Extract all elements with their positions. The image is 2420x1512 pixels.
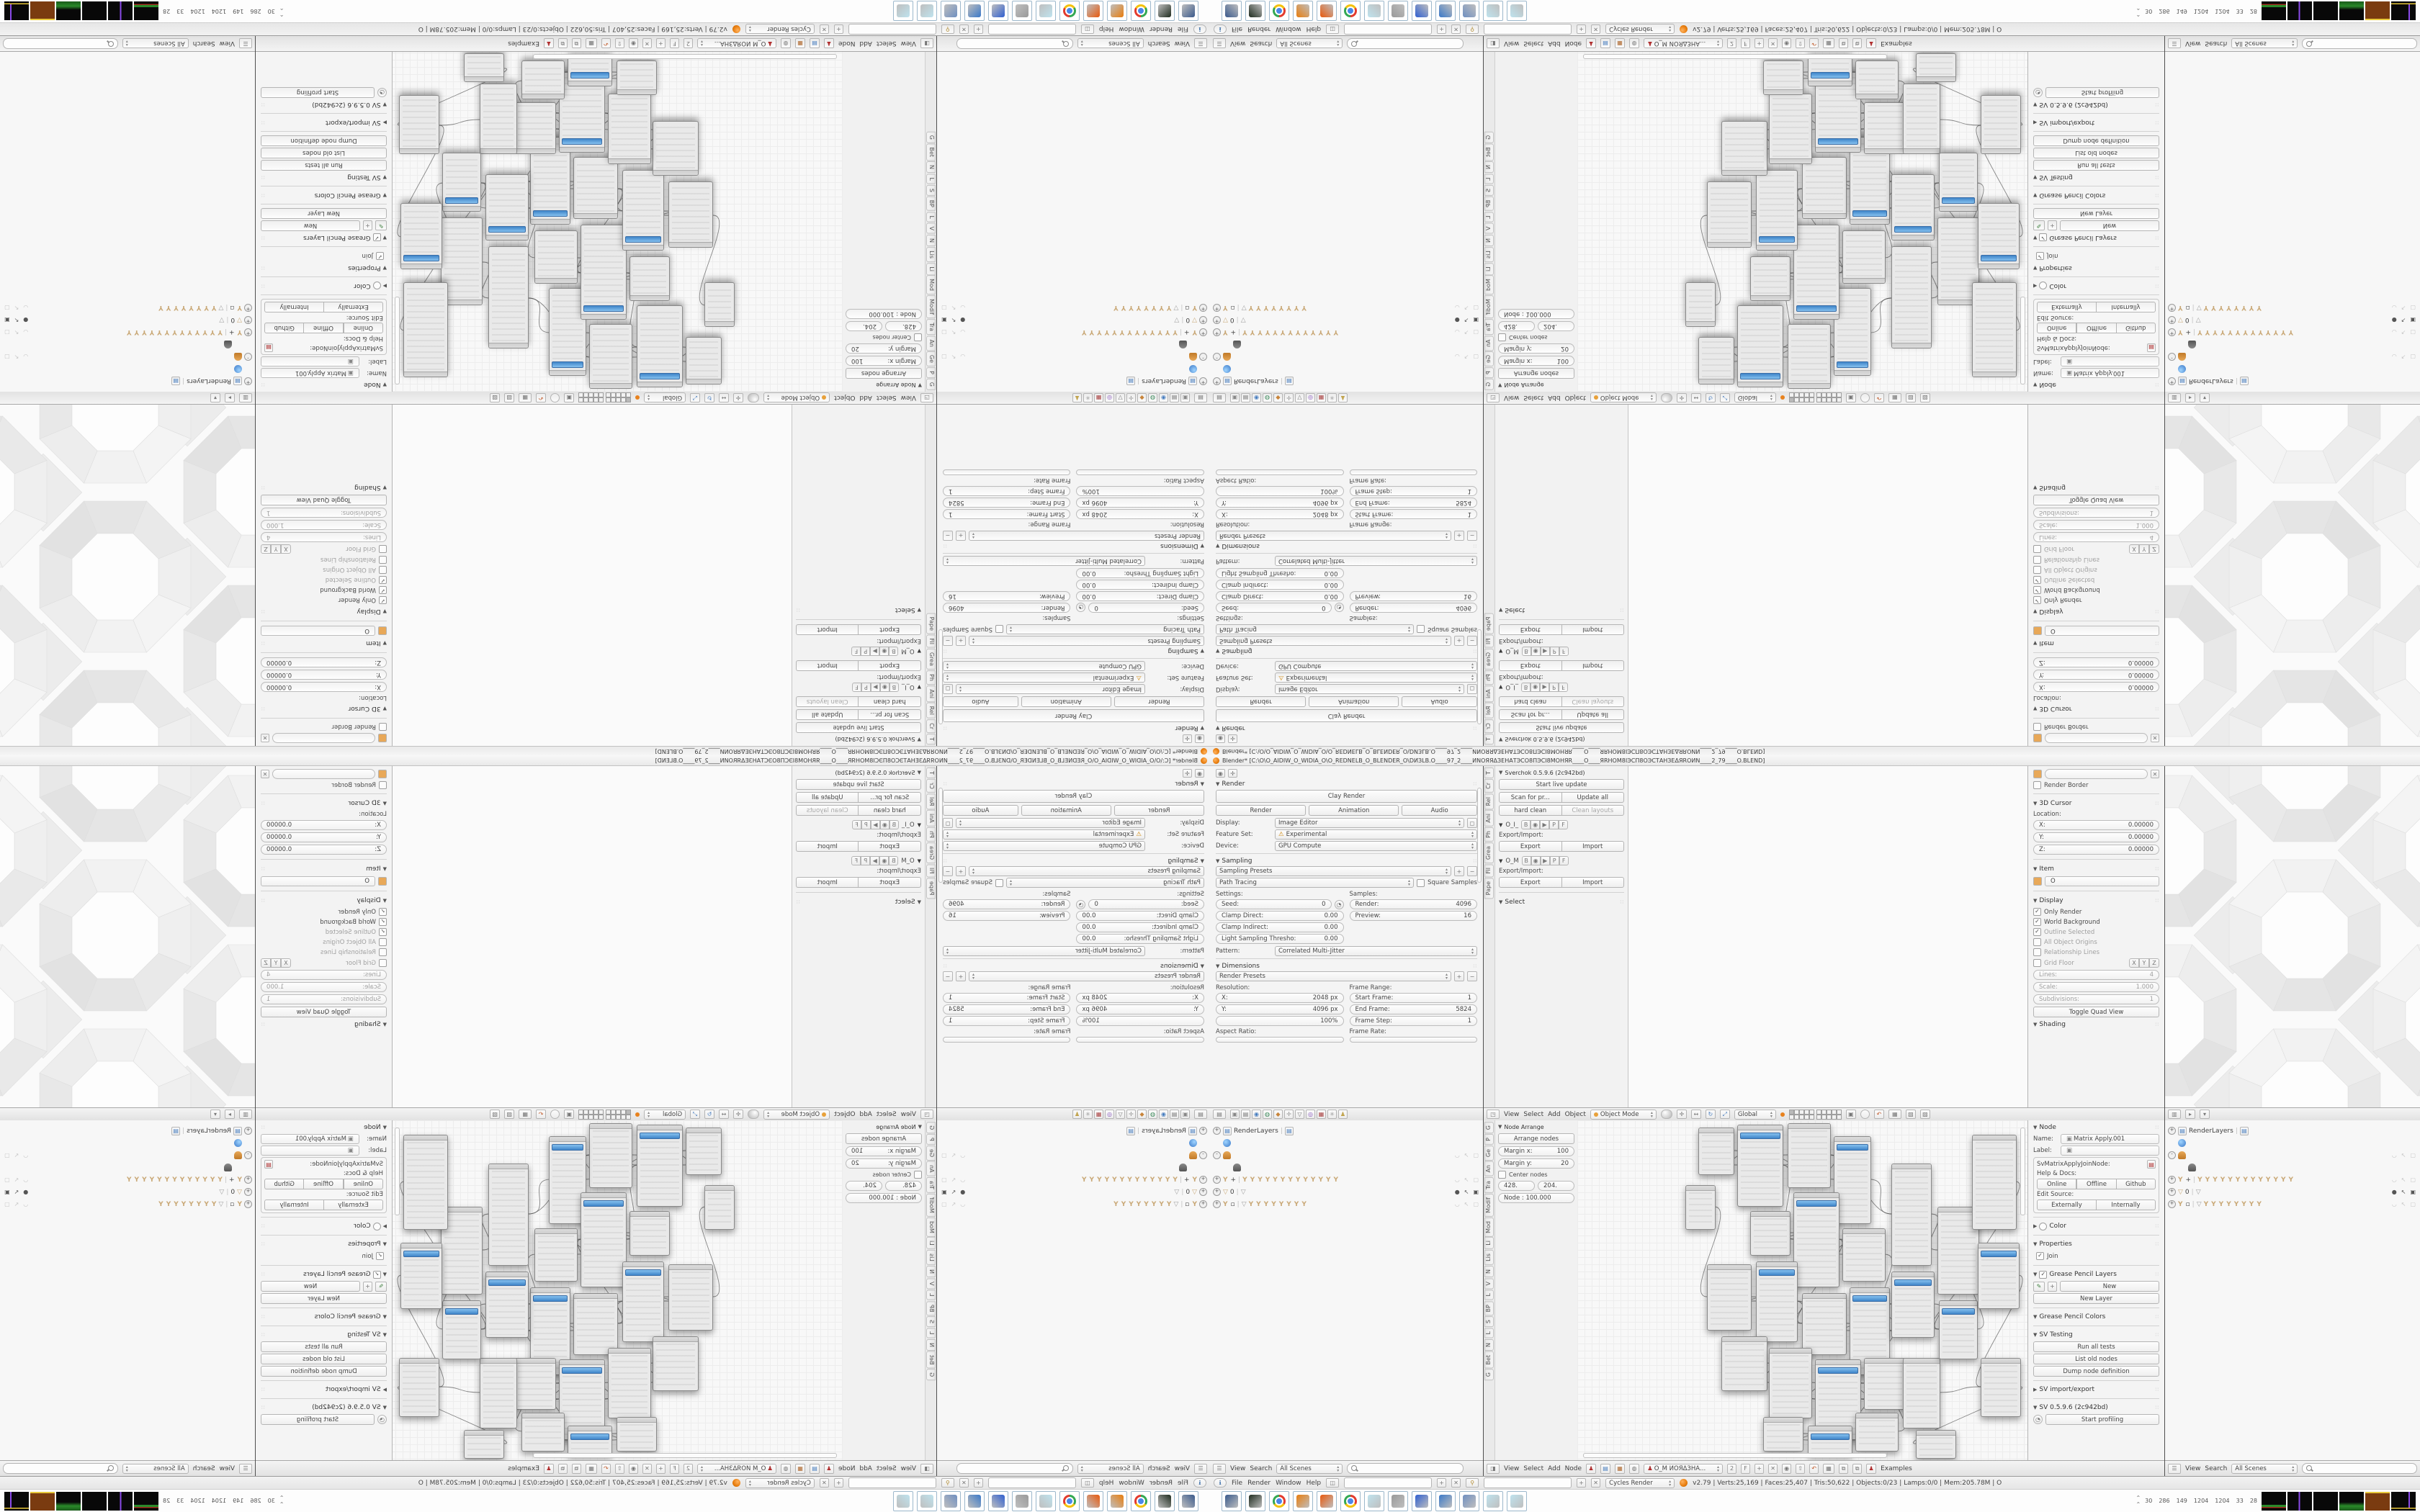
render-button[interactable]: Render: [1216, 696, 1306, 707]
cursor-y-field[interactable]: Y:0.00000: [261, 670, 387, 680]
expand-icon[interactable]: +: [1199, 1127, 1207, 1135]
props-tab-icon-2[interactable]: ◉: [1159, 393, 1168, 402]
info-editor-icon[interactable]: ℹ: [1214, 24, 1227, 34]
panel-sampling[interactable]: ▼Sampling∷: [943, 856, 1204, 866]
animation-button[interactable]: Animation: [1021, 696, 1111, 707]
restrict-toggles[interactable]: ◡↖▢: [941, 302, 965, 314]
seed-clock-icon[interactable]: ◔: [1077, 900, 1086, 909]
outliner-scope-dropdown[interactable]: All Scenes▴▾: [1077, 39, 1144, 49]
props-tab-icon-9[interactable]: ✳: [1083, 393, 1093, 402]
taskbar-app-icon-11[interactable]: [917, 1491, 937, 1511]
props-tab-icon-0[interactable]: ▣: [1180, 1110, 1190, 1119]
import-button[interactable]: Import: [796, 841, 859, 852]
tree-type-icon-2[interactable]: ▤: [1600, 39, 1610, 49]
featureset-dropdown[interactable]: ⚠Experimental▴▾: [943, 672, 1145, 683]
outliner-r-scope-dropdown[interactable]: All Scenes▴▾: [122, 1464, 189, 1474]
menu-select-3d[interactable]: Select: [877, 1111, 897, 1118]
axis-toggle-x[interactable]: X: [2129, 958, 2139, 968]
taskbar-app-icon-7[interactable]: [1012, 1491, 1032, 1511]
externally-button[interactable]: Externally: [2037, 1200, 2097, 1210]
sampling-presets-dropdown[interactable]: Sampling Presets▴▾: [969, 636, 1204, 646]
outliner-item-label[interactable]: 0: [1230, 317, 1234, 324]
tool-tab-mod[interactable]: Mod: [1484, 276, 1494, 295]
tool-tab-tra[interactable]: Tra: [926, 1177, 936, 1193]
remove-preset-button[interactable]: −: [943, 636, 953, 646]
tree-om-toggles[interactable]: B◉▶PF: [851, 856, 898, 865]
res-x-field[interactable]: X:2048 px: [1077, 509, 1205, 519]
outliner-row[interactable]: +▤RenderLayers|▤: [1213, 375, 1480, 387]
node-menu-node[interactable]: Node: [1565, 40, 1582, 48]
center-nodes-checkbox[interactable]: [914, 1171, 922, 1179]
graph-node[interactable]: [704, 282, 735, 327]
res-y-field[interactable]: Y:4096 px: [1216, 498, 1344, 508]
outliner-menu-view[interactable]: View: [1175, 1465, 1190, 1472]
restrict-toggles[interactable]: ●↖▣: [1455, 1186, 1479, 1198]
tool-tab-an[interactable]: An: [926, 336, 936, 351]
props-tab-icon-3[interactable]: ◍: [1263, 393, 1272, 402]
graph-node[interactable]: [1756, 170, 1798, 251]
add-gp-icon[interactable]: +: [363, 221, 372, 231]
fake-user-button[interactable]: F: [1741, 39, 1750, 49]
sv-toggle-B[interactable]: B: [889, 856, 898, 865]
gp-layers-panel[interactable]: ▼✓Grease Pencil Layers∷: [261, 1269, 387, 1279]
manipulator-translate-icon[interactable]: ↔: [1691, 393, 1701, 402]
cursor-y-field[interactable]: Y:0.00000: [2033, 832, 2159, 842]
menu-select-3d[interactable]: Select: [877, 395, 897, 402]
editor-type-node-button[interactable]: ◨: [1487, 39, 1500, 49]
fake-user-button[interactable]: F: [1741, 1464, 1750, 1474]
outliner-row[interactable]: [1213, 1137, 1480, 1149]
clay-render-button[interactable]: Clay Render: [943, 709, 1204, 722]
arrange-x-field[interactable]: 428.: [885, 321, 922, 331]
sv-toggle-F[interactable]: F: [1559, 683, 1568, 692]
snap-node-icon[interactable]: ↶: [601, 1464, 611, 1474]
graph-node[interactable]: [1842, 1228, 1886, 1282]
arrange-nodes-button[interactable]: Arrange nodes: [1498, 368, 1574, 379]
margin-y-field[interactable]: Margin y:20: [1498, 343, 1574, 354]
properties-scrollbar[interactable]: [1477, 788, 1482, 883]
outliner-item-label[interactable]: ▫: [1185, 305, 1189, 312]
props-tab-icon-10[interactable]: ♟: [1072, 393, 1082, 402]
tool-tab-bp[interactable]: BP: [926, 1301, 936, 1315]
hard-clean-button[interactable]: hard clean: [1499, 805, 1562, 816]
list-old-nodes-button[interactable]: List old nodes: [2033, 1354, 2159, 1364]
axis-toggle-x[interactable]: X: [281, 544, 291, 554]
scene-icon[interactable]: ⚲: [1466, 1478, 1479, 1488]
manipulator-scale-icon[interactable]: ⤢: [1720, 393, 1730, 402]
only-render-checkbox[interactable]: ✓: [2033, 908, 2041, 916]
graph-node[interactable]: [1788, 324, 1831, 389]
preview-samples-field[interactable]: Preview:16: [943, 911, 1071, 921]
copy-icon[interactable]: ⧉: [1839, 1464, 1848, 1474]
add-gp-icon[interactable]: +: [2048, 221, 2057, 231]
graph-node[interactable]: [514, 102, 556, 154]
animation-button[interactable]: Animation: [1021, 805, 1111, 816]
outliner-row[interactable]: +▽0|▽●↖▣: [3, 1186, 252, 1198]
clean-layouts-button[interactable]: Clean layouts: [796, 696, 859, 707]
layer-grid-0[interactable]: [1789, 393, 1814, 403]
add-preset-button[interactable]: +: [1454, 636, 1464, 646]
expand-icon[interactable]: -: [244, 1151, 252, 1159]
axis-toggle-z[interactable]: Z: [2149, 544, 2159, 554]
toggle-quad-view-button[interactable]: Toggle Quad View: [2033, 495, 2159, 505]
gp-colors-panel[interactable]: ▼Grease Pencil Colors∷: [2033, 190, 2159, 200]
graph-node[interactable]: [668, 1264, 713, 1331]
graph-hscrollbar[interactable]: [533, 54, 837, 59]
menu-help[interactable]: Help: [1307, 26, 1322, 33]
outliner-row[interactable]: +Y+|YYYYYYYYYYYYY◡↖▢: [940, 326, 1207, 338]
margin-y-field[interactable]: Margin y:20: [1498, 1158, 1574, 1169]
lock-icon[interactable]: ◻: [943, 818, 953, 828]
taskbar-app-icon-0[interactable]: [1178, 1491, 1198, 1511]
render-ogl-anim-icon[interactable]: ▨: [1920, 1110, 1930, 1119]
tool-tab-n[interactable]: N: [1484, 1266, 1494, 1277]
graph-node[interactable]: [581, 1192, 627, 1287]
gp-new-button[interactable]: New: [2060, 1281, 2159, 1292]
info-editor-icon[interactable]: ℹ: [1193, 1478, 1206, 1488]
start-frame-field[interactable]: Start Frame:1: [1350, 993, 1478, 1003]
paste-icon[interactable]: ⧉: [1852, 1464, 1862, 1474]
expand-icon[interactable]: +: [1199, 328, 1207, 336]
node-menu-node[interactable]: Node: [838, 40, 856, 48]
scan-props-button[interactable]: Scan for pr...: [1499, 792, 1562, 803]
graph-node[interactable]: [1864, 102, 1906, 154]
info-editor-icon[interactable]: ℹ: [1193, 24, 1206, 34]
outliner-row[interactable]: [940, 1137, 1207, 1149]
restrict-toggles[interactable]: ◡↖▢: [2392, 302, 2416, 314]
examples-menu[interactable]: Examples: [1881, 40, 1912, 48]
outliner-row[interactable]: -◡↖▢: [1213, 1149, 1480, 1161]
properties-scrollbar[interactable]: [938, 629, 943, 724]
graph-node[interactable]: [399, 1358, 439, 1417]
outliner-row[interactable]: +Y+|YYYYYYYYYYYYY◡↖▢: [940, 1174, 1207, 1186]
layer-grids[interactable]: [578, 393, 631, 403]
pin-icon[interactable]: ◉: [1195, 734, 1204, 743]
outliner-row[interactable]: +▽0|▽●↖▣: [2168, 314, 2417, 326]
outliner-menu-search[interactable]: Search: [1250, 1465, 1272, 1472]
tree-users-badge[interactable]: 2: [1727, 1464, 1736, 1474]
graph-node[interactable]: [1891, 174, 1935, 240]
cursor-y-field[interactable]: Y:0.00000: [2033, 670, 2159, 680]
tool-tab-rel[interactable]: Rel: [926, 703, 936, 719]
tree-users-badge[interactable]: 2: [684, 1464, 693, 1474]
tool-tab-mod[interactable]: Mod: [926, 1218, 936, 1237]
sv-toggle-P[interactable]: P: [1549, 820, 1559, 829]
graph-hscrollbar[interactable]: [533, 1453, 837, 1458]
graph-node[interactable]: [568, 56, 612, 86]
node-menu-select[interactable]: Select: [1523, 40, 1543, 48]
externally-button[interactable]: Externally: [2037, 302, 2097, 312]
outliner-item-label[interactable]: +: [1231, 1176, 1237, 1184]
menu-file[interactable]: File: [1178, 26, 1188, 33]
graph-hscrollbar[interactable]: [1583, 1453, 1887, 1458]
tree-om-toggles[interactable]: B◉▶PF: [851, 647, 898, 656]
sverchok-panel[interactable]: ▼Sverchok 0.5.9.6 (2c942bd): [1499, 768, 1624, 777]
tool-tab-s[interactable]: S: [926, 1316, 936, 1327]
grid-axis-toggles[interactable]: XYZ: [2129, 958, 2159, 968]
image-header-icon-2[interactable]: ▾: [2200, 393, 2210, 402]
graph-node[interactable]: [1756, 1261, 1798, 1342]
add-gp-icon[interactable]: +: [363, 1282, 372, 1292]
render-presets-dropdown[interactable]: Render Presets▴▾: [969, 971, 1204, 981]
shading-panel[interactable]: ▼Shading∷: [261, 1020, 387, 1030]
cursor3d-panel[interactable]: ▼3D Cursor∷: [2033, 703, 2159, 714]
integrator-dropdown[interactable]: Path Tracing▴▾: [1216, 624, 1414, 634]
graph-node[interactable]: [704, 1185, 735, 1230]
clean-layouts-button[interactable]: Clean layouts: [1562, 696, 1625, 707]
preview-samples-field[interactable]: Preview:16: [1350, 911, 1478, 921]
panel-sampling[interactable]: ▼Sampling∷: [1216, 856, 1477, 866]
export-button2[interactable]: Export: [1499, 877, 1562, 888]
gp-new-button[interactable]: New: [2060, 220, 2159, 231]
tray-chevron-icon[interactable]: ⌃⌃: [279, 1495, 284, 1508]
graph-node[interactable]: [1981, 1358, 2021, 1417]
sv-toggle-◉[interactable]: ◉: [880, 820, 889, 829]
outliner-item-label[interactable]: 0: [230, 317, 235, 324]
graph-node[interactable]: [622, 1261, 664, 1342]
props-tab-icon-10[interactable]: ♟: [1338, 393, 1348, 402]
copy-icon[interactable]: ⧉: [572, 1464, 581, 1474]
tree-oi-toggles[interactable]: B◉▶PF: [1521, 683, 1568, 692]
lock-camera-icon[interactable]: ▣: [1846, 1110, 1856, 1119]
graph-node[interactable]: [521, 60, 565, 99]
add-render-preset-button[interactable]: +: [956, 531, 966, 541]
scene-field[interactable]: [848, 1477, 936, 1488]
props-tab-icon-8[interactable]: ▦: [1094, 393, 1103, 402]
item-name-field[interactable]: O: [261, 876, 375, 886]
add-scene-button[interactable]: +: [834, 24, 843, 34]
outliner-row[interactable]: -◡↖▢: [3, 1149, 252, 1161]
tool-tab-bp[interactable]: BP: [926, 197, 936, 211]
expand-icon[interactable]: +: [1199, 316, 1207, 324]
taskbar-app-icon-12[interactable]: [1507, 1491, 1527, 1511]
clay-render-button[interactable]: Clay Render: [1216, 790, 1477, 803]
grid-scale-field[interactable]: Scale:1.000: [2033, 520, 2159, 530]
sv-toggle-B[interactable]: B: [1522, 856, 1531, 865]
editor-type-node-button[interactable]: ◨: [1487, 1464, 1500, 1474]
export-button[interactable]: Export: [1499, 660, 1562, 671]
outliner-row[interactable]: +▤RenderLayers|▤: [3, 1125, 252, 1137]
unlink-tree-button[interactable]: ✕: [642, 39, 652, 49]
graph-node[interactable]: [1763, 1417, 1803, 1452]
tool-tab-g[interactable]: G: [926, 379, 936, 390]
res-pct-field[interactable]: 100%: [1077, 1016, 1205, 1026]
taskbar-app-icon-7[interactable]: [1388, 1491, 1408, 1511]
tool-tab-cr[interactable]: Cr: [926, 779, 936, 793]
expand-icon[interactable]: +: [244, 1127, 252, 1135]
taskbar-app-icon-10[interactable]: [941, 1491, 961, 1511]
snap-element-icon[interactable]: ▦: [1888, 1110, 1901, 1119]
outliner-row[interactable]: +▽0|▽●↖▣: [1213, 314, 1480, 326]
expand-icon[interactable]: +: [1213, 304, 1221, 312]
pin-icon[interactable]: ◉: [1195, 769, 1204, 778]
sampling-presets-dropdown[interactable]: Sampling Presets▴▾: [1216, 636, 1451, 646]
tree-type-icon-4[interactable]: ◍: [781, 39, 791, 49]
tool-tab-an[interactable]: An: [926, 1161, 936, 1176]
restrict-toggles[interactable]: ●↖▣: [4, 314, 28, 326]
outliner-row[interactable]: -◡↖▢: [1213, 351, 1480, 363]
axis-toggle-y[interactable]: Y: [271, 544, 281, 554]
res-y-field[interactable]: Y:4096 px: [1077, 1004, 1205, 1014]
render-samples-field[interactable]: Render:4096: [1350, 603, 1478, 613]
tool-tab-fil[interactable]: Fil: [1484, 864, 1494, 877]
outliner-item-label[interactable]: RenderLayers: [2189, 1128, 2233, 1135]
doc-icon[interactable]: ▤: [264, 1160, 273, 1169]
expand-icon[interactable]: +: [1199, 1176, 1207, 1184]
seed-field[interactable]: Seed:0: [1216, 603, 1332, 613]
node-label-field[interactable]: ▣: [2061, 356, 2159, 366]
square-samples-checkbox[interactable]: [995, 879, 1003, 887]
aspect-field[interactable]: [1077, 1037, 1205, 1043]
snap-node-mode-icon[interactable]: ▦: [586, 39, 597, 49]
start-profiling-button[interactable]: Start profiling: [2045, 1414, 2159, 1425]
expand-icon[interactable]: -: [1199, 353, 1207, 361]
outliner-row[interactable]: +Y+|YYYYYYYYYYYYY◡↖▢: [2168, 1174, 2417, 1186]
outliner-item-label[interactable]: +: [1184, 329, 1190, 336]
screen-layout-icon[interactable]: ◫: [1326, 24, 1339, 34]
sv-toggle-▶[interactable]: ▶: [870, 647, 879, 656]
pin-tree-icon[interactable]: ◉: [629, 39, 638, 49]
light-threshold-field[interactable]: Light Sampling Thresho:0.00: [1077, 568, 1205, 578]
panel-dimensions[interactable]: ▼Dimensions∷: [1216, 541, 1477, 551]
outliner-row[interactable]: [3, 1161, 252, 1174]
menu-file[interactable]: File: [1178, 1480, 1188, 1487]
integrator-dropdown[interactable]: Path Tracing▴▾: [1006, 878, 1204, 888]
render-samples-field[interactable]: Render:4096: [943, 603, 1071, 613]
outliner-item-label[interactable]: ▫: [1231, 305, 1235, 312]
tool-tab-ph[interactable]: Ph: [926, 670, 936, 685]
offline-button[interactable]: Offline: [2076, 323, 2116, 333]
graph-node[interactable]: [488, 246, 529, 348]
graph-node[interactable]: [485, 1272, 529, 1338]
lock-camera-icon[interactable]: ▣: [564, 1110, 574, 1119]
graph-node[interactable]: [1737, 305, 1783, 387]
tool-tab-n[interactable]: N: [1484, 1339, 1494, 1351]
outliner-scope-dropdown[interactable]: All Scenes▴▾: [1077, 1464, 1144, 1474]
framerate-field[interactable]: [1350, 469, 1478, 475]
integrator-dropdown[interactable]: Path Tracing▴▾: [1216, 878, 1414, 888]
add-render-preset-button[interactable]: +: [1454, 971, 1464, 981]
outliner-row[interactable]: +Y+|YYYYYYYYYYYYY◡↖▢: [3, 1174, 252, 1186]
online-button[interactable]: Online: [2037, 323, 2076, 333]
sampling-presets-dropdown[interactable]: Sampling Presets▴▾: [1216, 866, 1451, 876]
start-live-update-button[interactable]: Start live update: [1499, 722, 1624, 733]
tool-tab-l[interactable]: L: [1484, 1290, 1494, 1300]
shading-mode-icon[interactable]: [1661, 393, 1672, 402]
outliner-search-field[interactable]: [956, 1463, 1073, 1474]
node-menu-view[interactable]: View: [1504, 1465, 1519, 1472]
hard-clean-button[interactable]: hard clean: [1499, 696, 1562, 707]
arrange-x-field[interactable]: 428.: [1498, 1181, 1535, 1191]
outline-selected-checkbox[interactable]: ✓: [379, 576, 387, 584]
graph-node[interactable]: [1802, 1293, 1847, 1355]
lock-camera-icon[interactable]: ▣: [564, 393, 574, 402]
graph-hscrollbar[interactable]: [1583, 54, 1887, 59]
world-bg-checkbox[interactable]: ✓: [2033, 918, 2041, 926]
props-tab-icon-9[interactable]: ✳: [1083, 1110, 1093, 1119]
graph-node[interactable]: [534, 1228, 578, 1282]
outliner-row[interactable]: +▤RenderLayers|▤: [940, 375, 1207, 387]
graph-node[interactable]: [622, 170, 664, 251]
restrict-toggles[interactable]: ◡↖▢: [941, 326, 965, 338]
graph-node[interactable]: [653, 121, 699, 176]
internally-button[interactable]: Internally: [264, 302, 323, 312]
shading-panel[interactable]: ▼Shading∷: [2033, 482, 2159, 492]
sv-version-panel[interactable]: ▼SV 0.5.9.6 (2c942bd)∷: [2033, 99, 2159, 109]
graph-node[interactable]: [464, 1430, 504, 1459]
taskbar-app-icon-6[interactable]: [1364, 1, 1384, 22]
outliner-item-label[interactable]: +: [229, 1176, 235, 1184]
delete-screen-button[interactable]: ✕: [959, 24, 969, 34]
editor-type-outliner-button[interactable]: ☰: [1213, 1464, 1226, 1474]
graph-node[interactable]: [1903, 1358, 1940, 1428]
delete-screen-button[interactable]: ✕: [959, 1478, 969, 1488]
render-ogl-icon[interactable]: ▧: [1906, 393, 1916, 402]
outliner-r-menu-view[interactable]: View: [220, 1465, 235, 1472]
tool-tab-g[interactable]: G: [926, 132, 936, 143]
tool-tab-bet[interactable]: Bet: [926, 1351, 936, 1369]
menu-window[interactable]: Window: [1119, 26, 1144, 33]
graph-node[interactable]: [1972, 1135, 2017, 1230]
outliner-r-menu-view[interactable]: View: [220, 40, 235, 48]
taskbar-app-icon-6[interactable]: [1036, 1, 1056, 22]
graph-node[interactable]: [1685, 282, 1716, 327]
examples-menu[interactable]: Examples: [1881, 1465, 1912, 1472]
list-old-nodes-button[interactable]: List old nodes: [261, 1354, 387, 1364]
tool-tab-p[interactable]: P: [1484, 1134, 1494, 1145]
display-panel[interactable]: ▼Display∷: [2033, 606, 2159, 616]
layer-grid-1[interactable]: [578, 393, 604, 403]
editor-type-3d-button[interactable]: ◳: [1487, 1110, 1500, 1119]
gp-layers-panel[interactable]: ▼✓Grease Pencil Layers∷: [2033, 233, 2159, 243]
cursor3d-panel[interactable]: ▼3D Cursor∷: [2033, 798, 2159, 809]
graph-node[interactable]: [514, 1358, 556, 1410]
taskbar-app-icon-1[interactable]: [1155, 1491, 1175, 1511]
tool-tab-cr[interactable]: Cr: [1484, 719, 1494, 733]
properties-panel[interactable]: ▼Properties∷: [2033, 1239, 2159, 1249]
grid-axis-toggles[interactable]: XYZ: [261, 958, 291, 968]
manipulator-translate-icon[interactable]: ↔: [719, 393, 729, 402]
audio-button[interactable]: Audio: [943, 805, 1018, 816]
restrict-toggles[interactable]: ◡↖▢: [1455, 351, 1479, 363]
outliner-row[interactable]: +Y+|YYYYYYYYYYYYY◡↖▢: [3, 326, 252, 338]
menu-help[interactable]: Help: [1099, 1480, 1114, 1487]
cursor-x-field[interactable]: X:0.00000: [2033, 820, 2159, 830]
graph-node[interactable]: [1842, 230, 1886, 284]
github-button[interactable]: Github: [2117, 323, 2156, 333]
paste-icon[interactable]: ⧉: [558, 1464, 568, 1474]
outliner-row[interactable]: [1213, 338, 1480, 351]
render-border-checkbox[interactable]: [2033, 781, 2041, 789]
featureset-dropdown[interactable]: ⚠Experimental▴▾: [1275, 672, 1477, 683]
menu-render[interactable]: Render: [1247, 26, 1270, 33]
panel-render[interactable]: ▼Render∷: [1216, 779, 1477, 789]
outliner-item-label[interactable]: ▫: [1231, 1201, 1235, 1208]
remove-render-preset-button[interactable]: −: [1467, 971, 1477, 981]
sv-import-export-panel[interactable]: ▶SV import/export∷: [2033, 1385, 2159, 1395]
sv-import-export-panel[interactable]: ▶SV import/export∷: [261, 117, 387, 127]
restrict-toggles[interactable]: ◡↖▢: [4, 1174, 28, 1186]
outliner-row[interactable]: [940, 363, 1207, 375]
graph-node[interactable]: [653, 1336, 699, 1391]
tool-tab-pape[interactable]: Pape: [1484, 613, 1494, 634]
display-dropdown[interactable]: Image Editor▴▾: [1275, 684, 1464, 694]
render-presets-dropdown[interactable]: Render Presets▴▾: [1216, 531, 1451, 541]
taskbar-app-icon-3[interactable]: [1293, 1, 1313, 22]
expand-icon[interactable]: +: [1199, 377, 1207, 385]
render-button[interactable]: Render: [1114, 805, 1204, 816]
outliner-r-search-field[interactable]: [3, 38, 118, 49]
